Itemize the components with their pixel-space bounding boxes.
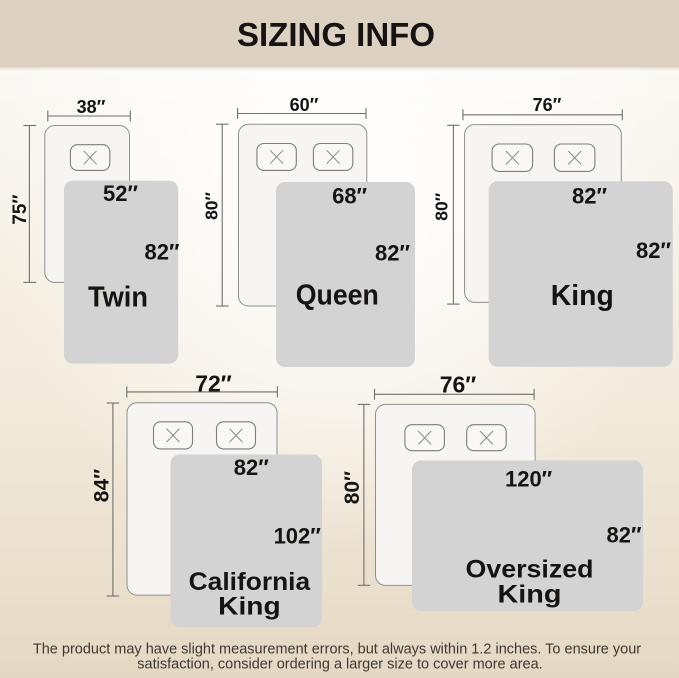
svg-text:82″: 82″: [375, 240, 410, 265]
svg-text:84″: 84″: [91, 469, 114, 502]
svg-text:82″: 82″: [606, 522, 641, 547]
svg-text:82″: 82″: [234, 455, 269, 480]
svg-text:52″: 52″: [103, 181, 138, 206]
svg-text:75″: 75″: [10, 194, 31, 224]
svg-text:72″: 72″: [195, 370, 232, 396]
svg-text:76″: 76″: [533, 95, 562, 115]
svg-text:80″: 80″: [431, 192, 451, 220]
svg-text:King: King: [218, 593, 281, 621]
svg-text:Queen: Queen: [296, 279, 379, 311]
svg-text:SIZING INFO: SIZING INFO: [237, 16, 435, 53]
svg-text:80″: 80″: [202, 191, 222, 219]
svg-text:80″: 80″: [341, 471, 364, 504]
svg-text:Twin: Twin: [88, 282, 148, 314]
svg-text:102″: 102″: [274, 524, 322, 549]
svg-text:82″: 82″: [144, 240, 179, 265]
svg-text:76″: 76″: [440, 372, 477, 398]
svg-text:82″: 82″: [572, 183, 607, 208]
svg-text:60″: 60″: [290, 95, 319, 115]
svg-text:satisfaction, consider orderin: satisfaction, consider ordering a larger…: [137, 656, 542, 672]
svg-text:120″: 120″: [505, 466, 553, 491]
svg-text:King: King: [551, 280, 614, 312]
svg-text:82″: 82″: [636, 238, 671, 263]
svg-text:68″: 68″: [332, 183, 367, 208]
svg-text:King: King: [498, 580, 562, 608]
svg-text:The product may have slight me: The product may have slight measurement …: [33, 642, 641, 658]
svg-text:38″: 38″: [77, 97, 106, 117]
